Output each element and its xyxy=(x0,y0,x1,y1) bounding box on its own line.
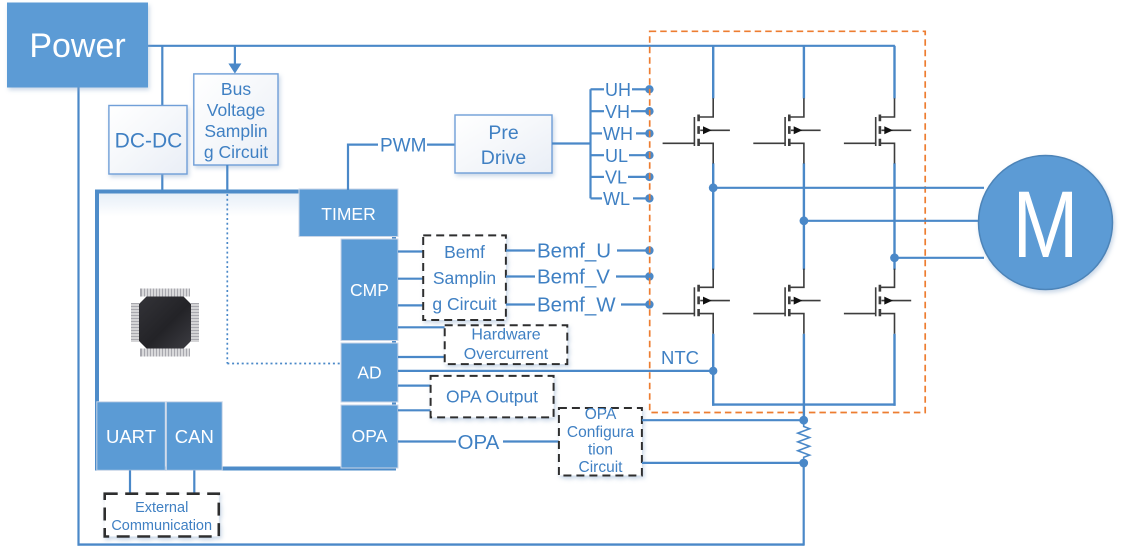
svg-text:tion: tion xyxy=(588,442,613,459)
svg-text:Bemf: Bemf xyxy=(444,242,485,262)
svg-text:UL: UL xyxy=(605,146,628,166)
svg-text:UART: UART xyxy=(106,426,156,447)
svg-text:Voltage: Voltage xyxy=(207,100,265,120)
svg-text:CMP: CMP xyxy=(350,280,389,300)
svg-text:External: External xyxy=(135,500,188,516)
svg-text:Bus: Bus xyxy=(221,79,251,99)
svg-text:M: M xyxy=(1013,172,1079,278)
svg-text:TIMER: TIMER xyxy=(321,204,375,224)
svg-text:OPA: OPA xyxy=(352,426,388,446)
svg-text:AD: AD xyxy=(357,363,381,383)
svg-text:Circuit: Circuit xyxy=(579,459,624,476)
svg-text:Configura: Configura xyxy=(567,424,635,441)
svg-text:Drive: Drive xyxy=(481,147,527,169)
svg-text:Hardware: Hardware xyxy=(471,327,540,344)
svg-text:OPA Output: OPA Output xyxy=(446,387,538,407)
svg-text:g Circuit: g Circuit xyxy=(204,142,268,162)
svg-text:Bemf_W: Bemf_W xyxy=(537,294,616,317)
svg-text:Bemf_V: Bemf_V xyxy=(537,266,610,289)
svg-text:VL: VL xyxy=(605,168,627,188)
svg-text:g Circuit: g Circuit xyxy=(432,294,496,314)
svg-text:OPA: OPA xyxy=(458,431,500,454)
svg-text:Power: Power xyxy=(29,27,125,65)
svg-text:WH: WH xyxy=(603,124,633,144)
svg-text:UH: UH xyxy=(605,80,631,100)
svg-text:VH: VH xyxy=(605,102,630,122)
svg-text:Communication: Communication xyxy=(111,518,212,534)
svg-text:WL: WL xyxy=(603,189,630,209)
svg-text:NTC: NTC xyxy=(661,347,699,368)
svg-text:OPA: OPA xyxy=(585,406,617,423)
svg-text:Bemf_U: Bemf_U xyxy=(537,240,611,263)
svg-text:PWM: PWM xyxy=(380,136,426,157)
svg-text:Samplin: Samplin xyxy=(433,268,496,288)
svg-text:Samplin: Samplin xyxy=(204,121,267,141)
svg-text:Pre: Pre xyxy=(488,122,518,144)
svg-text:Overcurrent: Overcurrent xyxy=(464,346,549,363)
svg-text:CAN: CAN xyxy=(175,426,214,447)
svg-text:DC-DC: DC-DC xyxy=(115,130,183,153)
